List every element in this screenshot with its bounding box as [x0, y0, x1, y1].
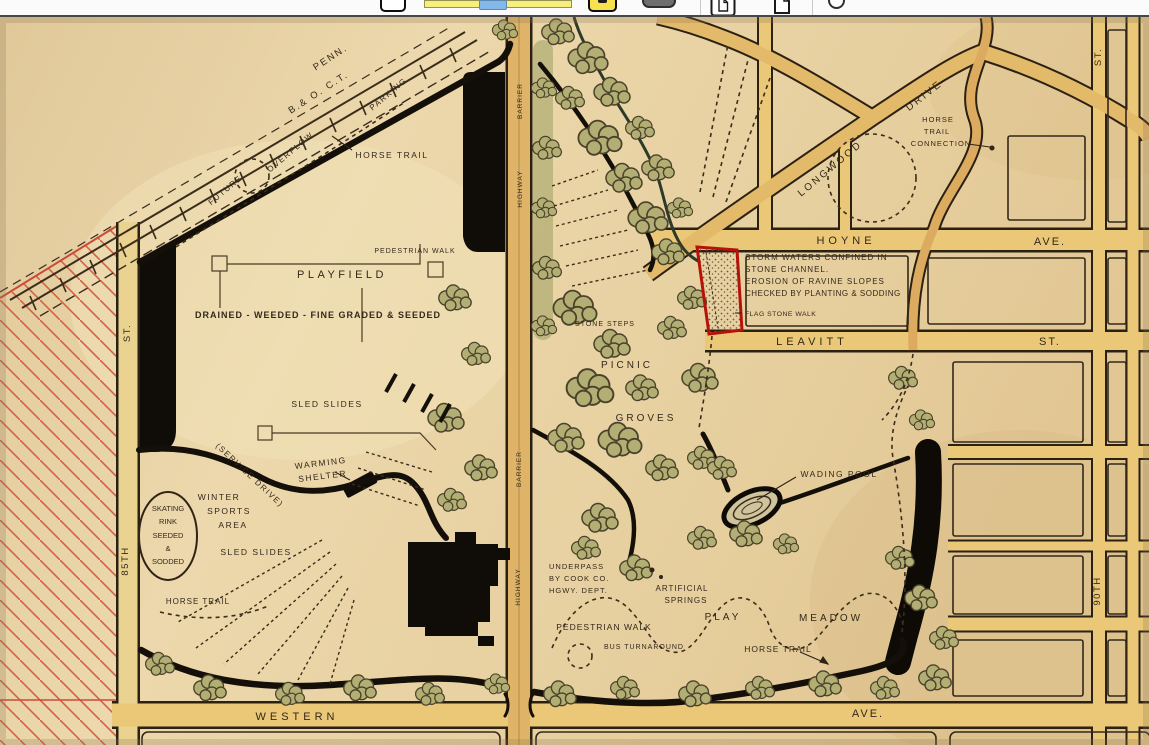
zoom-in-icon [598, 0, 607, 3]
label-stone-steps: STONE STEPS [575, 321, 635, 328]
label-leavitt: LEAVITT [776, 336, 848, 348]
label-groves: GROVES [616, 413, 677, 424]
label-highway-2: HIGHWAY [515, 568, 522, 605]
label-wading-pool: WADING POOL [800, 469, 877, 479]
two-page-view-icon[interactable] [770, 0, 794, 17]
label-underpass-3: HGWY. DEPT. [549, 586, 608, 595]
label-pedestrian-walk-top: PEDESTRIAN WALK [374, 248, 455, 255]
toolbar-divider [812, 0, 813, 15]
red-hatch-area [0, 222, 120, 745]
label-horse-trail-bottom: HORSE TRAIL [744, 644, 812, 654]
label-western: WESTERN [256, 711, 339, 723]
zoom-out-button[interactable] [380, 0, 406, 12]
label-underpass-1: UNDERPASS [549, 562, 604, 571]
label-horse-trail-top: HORSE TRAIL [355, 150, 428, 160]
label-rink-1: SKATING [152, 504, 185, 513]
label-winter-3: AREA [218, 520, 247, 530]
toolbar-divider [700, 0, 701, 15]
label-horse-conn-1: HORSE [922, 115, 954, 124]
label-playfield: PLAYFIELD [297, 269, 387, 281]
annotation-line-4: CHECKED BY PLANTING & SODDING [745, 289, 901, 298]
label-horse-trail-left: HORSE TRAIL [166, 597, 230, 606]
label-bus-turnaround: BUS TURNAROUND [604, 644, 684, 651]
annotation-line-2: STONE CHANNEL. [745, 265, 829, 274]
park-plan-map[interactable]: PENN. B.& O. C.T. FUTURE OVERFLOW PARKIN… [0, 17, 1149, 745]
annotation-line-1: STORM WATERS CONFINED IN [745, 253, 888, 262]
label-barrier-2: BARRIER [516, 451, 523, 487]
label-horse-conn-2: TRAIL [924, 127, 950, 136]
label-hoyne-ave: AVE. [1034, 236, 1066, 248]
label-rink-5: SODDED [152, 557, 185, 566]
label-meadow: MEADOW [799, 613, 863, 624]
fit-width-button[interactable] [642, 0, 676, 8]
label-rink-4: & [165, 544, 170, 553]
label-hoyne: HOYNE [816, 235, 875, 247]
zoom-slider[interactable] [424, 0, 572, 8]
label-rink-2: RINK [159, 517, 177, 526]
label-picnic: PICNIC [601, 360, 653, 371]
label-85th: 85TH [120, 546, 131, 575]
label-play: PLAY [705, 612, 742, 623]
label-sled-slides-bottom: SLED SLIDES [220, 547, 291, 557]
annotation-line-3: EROSION OF RAVINE SLOPES [745, 277, 885, 286]
label-drained: DRAINED - WEEDED - FINE GRADED & SEEDED [195, 310, 441, 320]
label-leavitt-st: ST. [1039, 336, 1061, 348]
label-90th: 90TH [1092, 576, 1103, 605]
label-springs-1: ARTIFICIAL [656, 584, 709, 593]
label-underpass-2: BY COOK CO. [549, 574, 609, 583]
label-western-ave: AVE. [852, 708, 884, 720]
label-winter-1: WINTER [198, 492, 241, 502]
label-springs-2: SPRINGS [664, 596, 707, 605]
label-pedestrian-walk-bottom: PEDESTRIAN WALK [556, 622, 651, 632]
zoom-slider-thumb[interactable] [479, 0, 507, 10]
label-highway-1: HIGHWAY [517, 170, 524, 207]
label-sled-slides-top: SLED SLIDES [291, 399, 362, 409]
label-barrier-1: BARRIER [517, 83, 524, 119]
label-winter-2: SPORTS [207, 506, 251, 516]
label-st-right: ST. [1093, 48, 1104, 66]
refresh-icon[interactable] [828, 0, 845, 9]
label-horse-conn-3: CONNECTION [911, 139, 971, 148]
single-page-view-icon[interactable] [710, 0, 736, 17]
zoom-in-button[interactable] [588, 0, 617, 12]
viewer-toolbar [0, 0, 1149, 17]
label-rink-3: SEEDED [153, 531, 184, 540]
viewer-window: PENN. B.& O. C.T. FUTURE OVERFLOW PARKIN… [0, 0, 1149, 745]
label-st-left: ST. [122, 324, 133, 342]
annotation-flagstone: FLAG STONE WALK [745, 311, 816, 318]
